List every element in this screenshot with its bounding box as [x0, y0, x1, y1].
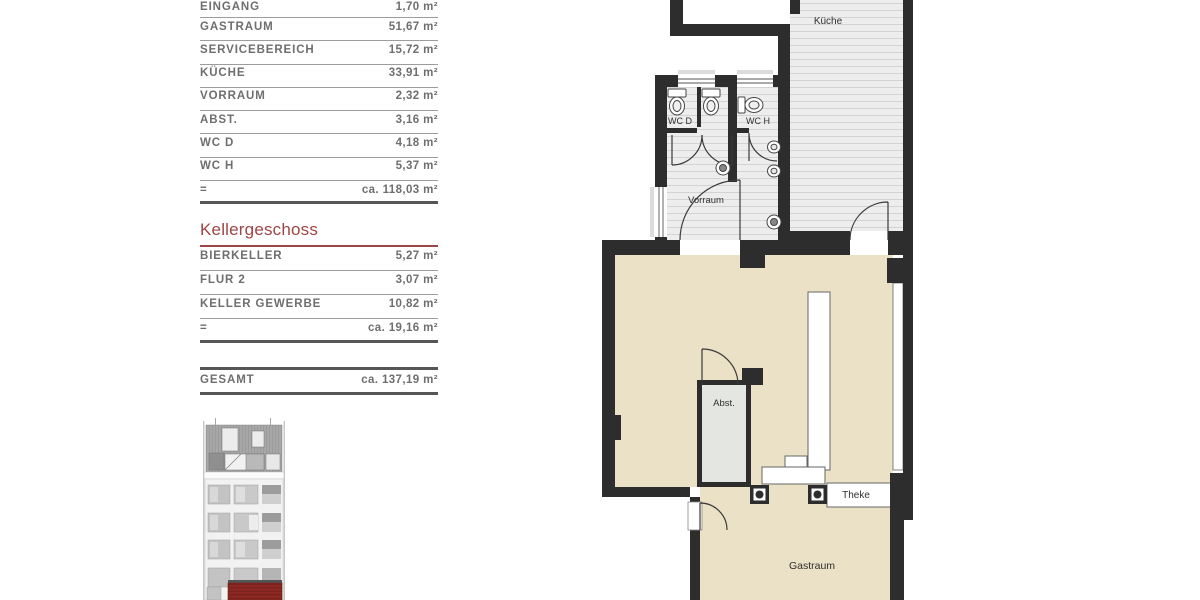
- room-area: 15,72 m²: [389, 44, 438, 56]
- room-area: 3,07 m²: [396, 274, 438, 286]
- room-label: VORRAUM: [200, 90, 266, 102]
- counter-step: [785, 456, 807, 468]
- room-label: SERVICEBEREICH: [200, 44, 315, 56]
- total-area: ca. 137,19 m²: [361, 374, 438, 386]
- toilet-icon: [738, 97, 763, 113]
- room-label-theke: Theke: [842, 490, 870, 501]
- kueche-floor: [790, 0, 903, 231]
- sum-area: ca. 118,03 m²: [362, 184, 438, 196]
- total-row: GESAMT ca. 137,19 m²: [200, 370, 438, 392]
- room-area: 5,27 m²: [396, 250, 438, 262]
- shopfront: [228, 583, 282, 600]
- room-label-kueche: Küche: [814, 16, 843, 27]
- window-band: [208, 513, 281, 532]
- area-table-basement: BIERKELLER 5,27 m² FLUR 2 3,07 m² KELLER…: [200, 247, 438, 343]
- sum-sign: =: [200, 184, 208, 196]
- room-label: KÜCHE: [200, 67, 245, 79]
- building-elevation: [196, 418, 292, 600]
- room-label-abst: Abst.: [713, 398, 735, 409]
- sum-sign: =: [200, 322, 208, 334]
- pillar: [808, 485, 827, 504]
- room-label: WC H: [200, 160, 234, 172]
- room-label: GASTRAUM: [200, 21, 274, 33]
- elevation-drawing: [203, 418, 285, 600]
- room-area: 33,91 m²: [389, 67, 438, 79]
- room-label-vorraum: Vorraum: [688, 195, 724, 206]
- kellergeschoss-heading: Kellergeschoss: [200, 220, 438, 247]
- toilet-icon: [702, 89, 720, 115]
- room-label: FLUR 2: [200, 274, 246, 286]
- toilet-icon: [668, 89, 686, 115]
- area-panel: EINGANG 1,70 m² GASTRAUM 51,67 m² SERVIC…: [200, 0, 438, 395]
- room-label: EINGANG: [200, 1, 260, 13]
- floor-plan: Küche WC D WC H Vorraum Abst. Theke Gast…: [590, 0, 920, 600]
- table-row: SERVICEBEREICH 15,72 m²: [200, 41, 438, 64]
- room-area: 4,18 m²: [396, 137, 438, 149]
- table-row: VORRAUM 2,32 m²: [200, 88, 438, 111]
- room-area: 3,16 m²: [396, 114, 438, 126]
- table-row: KELLER GEWERBE 10,82 m²: [200, 295, 438, 319]
- table-row: GASTRAUM 51,67 m²: [200, 18, 438, 41]
- window-band: [208, 485, 281, 504]
- room-label-wc-d: WC D: [668, 116, 692, 126]
- room-area: 51,67 m²: [389, 21, 438, 33]
- table-sum-row: = ca. 118,03 m²: [200, 181, 438, 204]
- table-row: FLUR 2 3,07 m²: [200, 271, 438, 295]
- room-label: BIERKELLER: [200, 250, 282, 262]
- table-row: BIERKELLER 5,27 m²: [200, 247, 438, 271]
- table-sum-row: = ca. 19,16 m²: [200, 319, 438, 343]
- room-label: KELLER GEWERBE: [200, 298, 321, 310]
- total-label: GESAMT: [200, 374, 255, 386]
- bar-counter: [808, 292, 830, 470]
- room-label-gastraum: Gastraum: [789, 560, 835, 572]
- room-label-wc-h: WC H: [746, 116, 770, 126]
- abst-room: [697, 380, 751, 487]
- table-row: EINGANG 1,70 m²: [200, 0, 438, 18]
- table-row: KÜCHE 33,91 m²: [200, 65, 438, 88]
- room-label: WC D: [200, 137, 234, 149]
- room-area: 5,37 m²: [396, 160, 438, 172]
- sum-area: ca. 19,16 m²: [368, 322, 438, 334]
- area-table-upper: EINGANG 1,70 m² GASTRAUM 51,67 m² SERVIC…: [200, 0, 438, 204]
- total-block: GESAMT ca. 137,19 m²: [200, 367, 438, 395]
- room-label: ABST.: [200, 114, 238, 126]
- window-band: [208, 540, 281, 559]
- counter-bottom: [762, 467, 825, 484]
- wall-niche: [893, 283, 903, 470]
- table-row: WC H 5,37 m²: [200, 158, 438, 181]
- table-row: ABST. 3,16 m²: [200, 111, 438, 134]
- room-area: 1,70 m²: [396, 1, 438, 13]
- room-area: 10,82 m²: [389, 298, 438, 310]
- table-row: WC D 4,18 m²: [200, 134, 438, 157]
- room-area: 2,32 m²: [396, 90, 438, 102]
- pillar: [750, 485, 769, 504]
